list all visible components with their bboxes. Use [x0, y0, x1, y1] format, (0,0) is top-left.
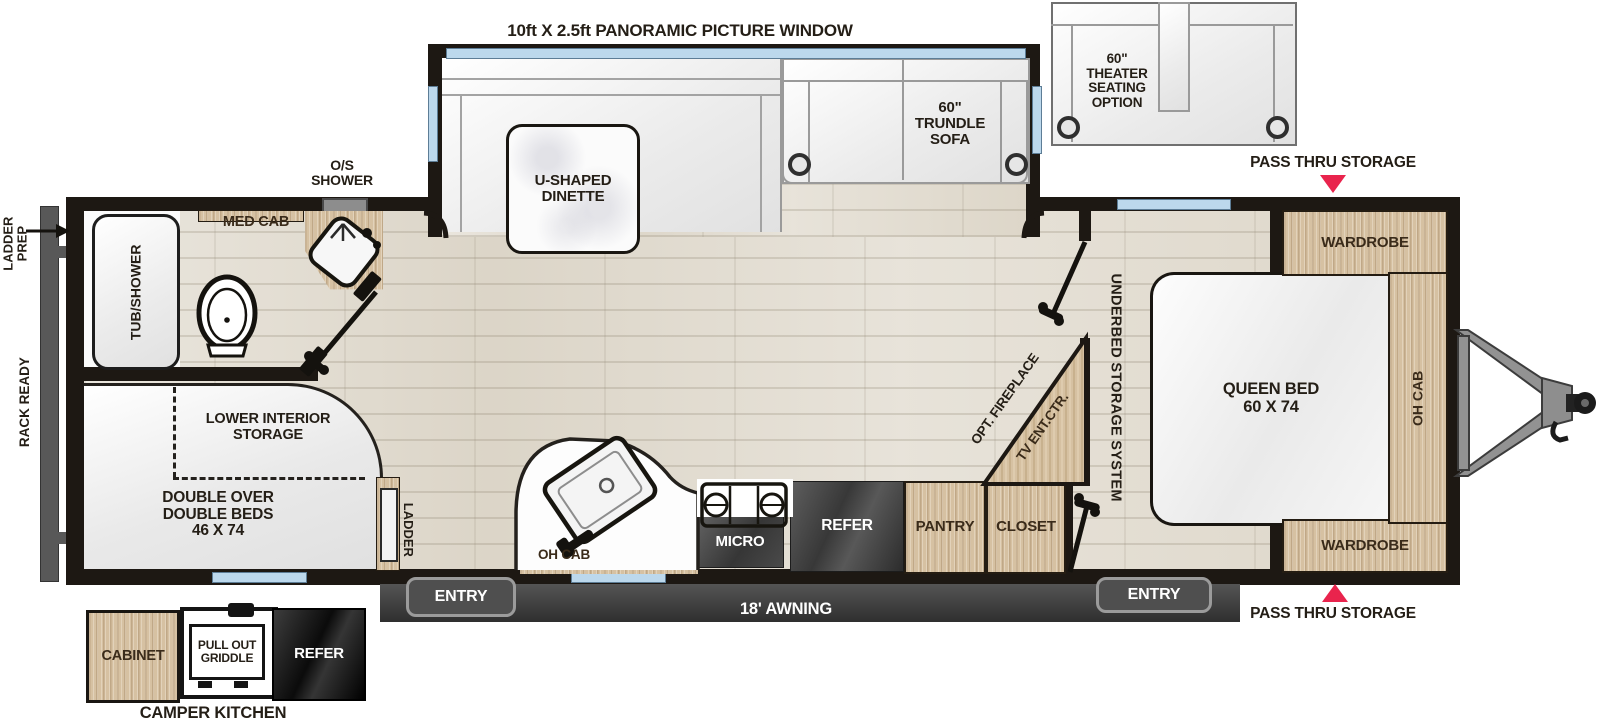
- rack-ready-label: RACK READY: [18, 357, 32, 447]
- panoramic-window-label: 10ft X 2.5ft PANORAMIC PICTURE WINDOW: [430, 22, 930, 40]
- med-cab-label: MED CAB: [206, 215, 306, 231]
- slideout-fillet-left: [424, 213, 446, 238]
- pass-thru-bottom-label: PASS THRU STORAGE: [1238, 606, 1428, 623]
- bedroom-oh-cab: OH CAB: [1388, 272, 1448, 524]
- microwave-label: MICRO: [698, 534, 782, 550]
- ladder-label: LADDER: [401, 503, 415, 557]
- hitch-jack-handle: [1553, 422, 1568, 440]
- floorplan-canvas: U-SHAPED DINETTE 60" TRUNDLE SOFA 60" TH…: [0, 0, 1600, 728]
- rack-ready-wrap: RACK READY: [12, 320, 38, 484]
- awning-label: 18' AWNING: [696, 601, 876, 619]
- pass-thru-bottom-arrow: [1322, 584, 1348, 602]
- theater-seating-label: 60" THEATER SEATING OPTION: [1063, 52, 1171, 110]
- toilet: [199, 277, 255, 356]
- bathroom-door: [299, 271, 382, 377]
- entry-door-swing: [1070, 493, 1101, 572]
- kitchen-oh-cab-label: OH CAB: [522, 548, 606, 563]
- ladder-prep-arrow: [26, 224, 70, 238]
- underbed-label-wrap: UNDERBED STORAGE SYSTEM: [1100, 262, 1130, 514]
- ladder-label-wrap: LADDER: [396, 484, 420, 576]
- hitch: [1456, 330, 1596, 476]
- bath-faucet: [362, 228, 372, 238]
- bedroom-door: [1038, 242, 1085, 326]
- camper-kitchen-label: CAMPER KITCHEN: [118, 705, 308, 723]
- slideout-fillet-right: [1024, 213, 1044, 238]
- lower-interior-storage-label: LOWER INTERIOR STORAGE: [158, 412, 378, 443]
- pass-thru-top-arrow: [1320, 175, 1346, 193]
- underbed-storage-label: UNDERBED STORAGE SYSTEM: [1107, 274, 1122, 502]
- trundle-sofa-label: 60" TRUNDLE SOFA: [870, 100, 1030, 149]
- bedroom-oh-cab-label: OH CAB: [1411, 370, 1426, 425]
- os-shower-label: O/S SHOWER: [296, 158, 388, 188]
- ladder-prep-wrap: LADDER PREP: [0, 194, 30, 294]
- ladder-prep-label: LADDER PREP: [1, 217, 28, 271]
- pass-thru-top-label: PASS THRU STORAGE: [1238, 155, 1428, 172]
- double-beds-label: DOUBLE OVER DOUBLE BEDS 46 X 74: [118, 490, 318, 540]
